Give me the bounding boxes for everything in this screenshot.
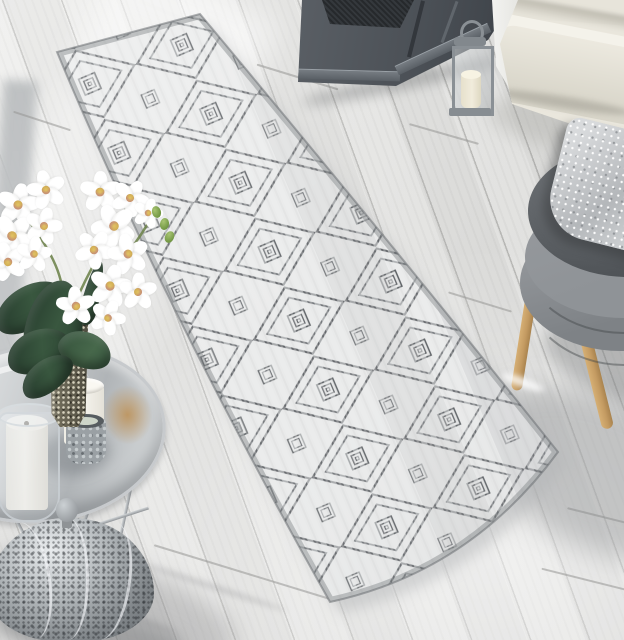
orchid-flower-center	[96, 188, 105, 197]
cabinet-mesh-door	[322, 0, 414, 30]
hurricane-glass	[0, 412, 60, 522]
lantern-candle	[461, 74, 481, 108]
candle-lantern	[446, 20, 494, 116]
tray-amber-reflection	[99, 382, 155, 447]
lantern-base	[449, 108, 491, 116]
velvet-pouf	[505, 120, 624, 440]
dome-panel-seam	[46, 518, 89, 640]
cabinet-plinth	[298, 69, 400, 82]
cabinet-frame	[407, 0, 425, 57]
lantern-top-cap	[454, 37, 486, 46]
dome-knob	[56, 498, 78, 522]
hallway-photo	[0, 0, 624, 640]
orchid-flower-center	[145, 210, 151, 216]
glass-hurricane-candle	[0, 408, 60, 520]
lantern-candle-top	[461, 70, 481, 79]
moroccan-filigree-lantern	[0, 508, 154, 640]
